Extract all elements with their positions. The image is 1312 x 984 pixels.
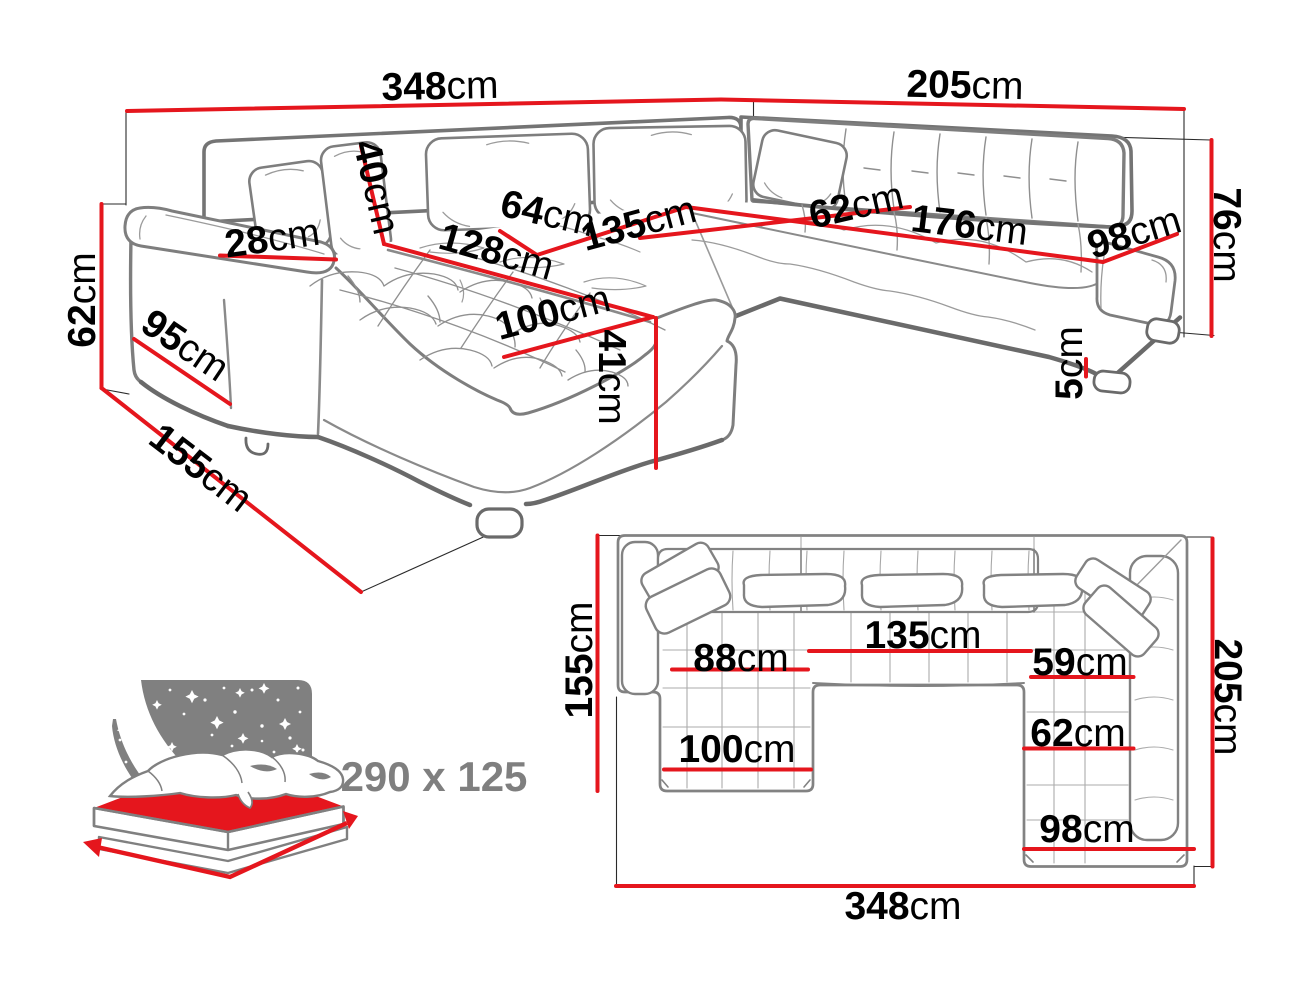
svg-text:100cm: 100cm bbox=[678, 728, 795, 771]
svg-text:88cm: 88cm bbox=[693, 637, 788, 680]
svg-text:205cm: 205cm bbox=[1206, 638, 1249, 755]
svg-text:98cm: 98cm bbox=[1039, 808, 1134, 851]
svg-text:205cm: 205cm bbox=[906, 63, 1024, 108]
svg-text:135cm: 135cm bbox=[864, 614, 981, 657]
svg-text:348cm: 348cm bbox=[844, 885, 961, 928]
svg-text:76cm: 76cm bbox=[1205, 187, 1248, 282]
svg-text:62cm: 62cm bbox=[1030, 712, 1125, 755]
svg-text:59cm: 59cm bbox=[1032, 641, 1127, 684]
svg-text:41cm: 41cm bbox=[590, 329, 633, 424]
svg-text:290 x 125: 290 x 125 bbox=[341, 753, 528, 800]
svg-text:5cm: 5cm bbox=[1048, 326, 1091, 400]
svg-text:62cm: 62cm bbox=[61, 252, 104, 347]
svg-text:348cm: 348cm bbox=[381, 64, 499, 109]
svg-text:155cm: 155cm bbox=[558, 601, 601, 718]
